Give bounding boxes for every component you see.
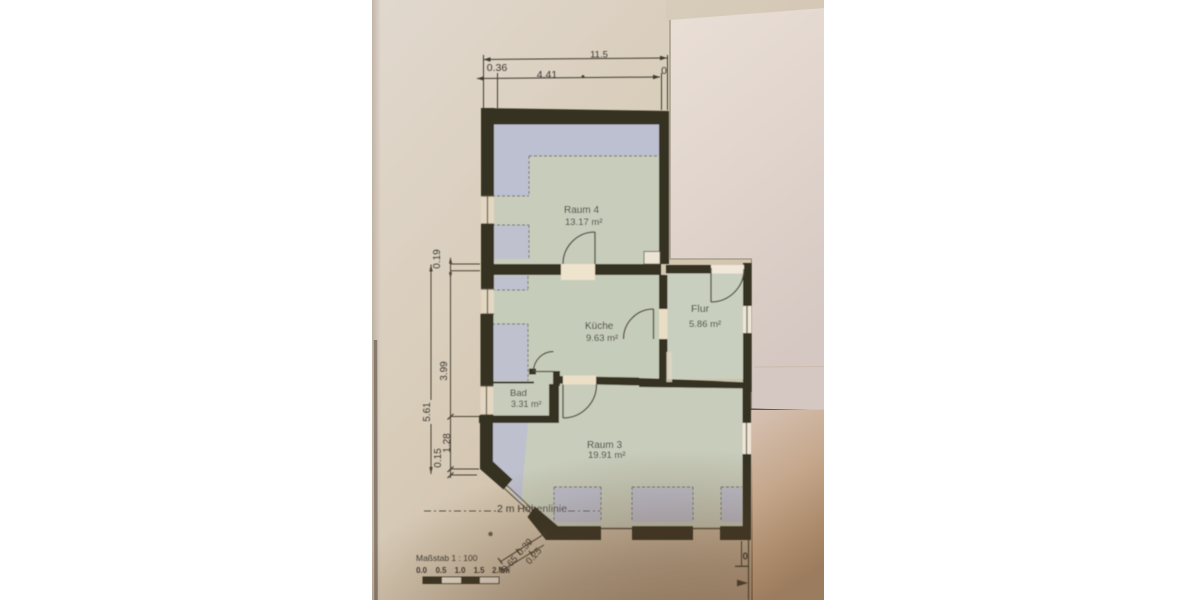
svg-text:Raum 4: Raum 4 (564, 205, 599, 216)
svg-text:13.17 m²: 13.17 m² (565, 217, 603, 228)
svg-text:11.5: 11.5 (590, 50, 608, 61)
svg-text:0.19: 0.19 (432, 249, 443, 269)
svg-text:3.99: 3.99 (439, 361, 450, 381)
svg-text:0.36: 0.36 (487, 62, 508, 74)
svg-text:5.86 m²: 5.86 m² (689, 319, 721, 330)
svg-text:0: 0 (661, 65, 667, 77)
svg-text:Küche: Küche (585, 321, 614, 332)
svg-text:4.41: 4.41 (537, 69, 558, 81)
svg-text:9.63 m²: 9.63 m² (586, 333, 618, 344)
svg-text:Flur: Flur (691, 303, 710, 315)
